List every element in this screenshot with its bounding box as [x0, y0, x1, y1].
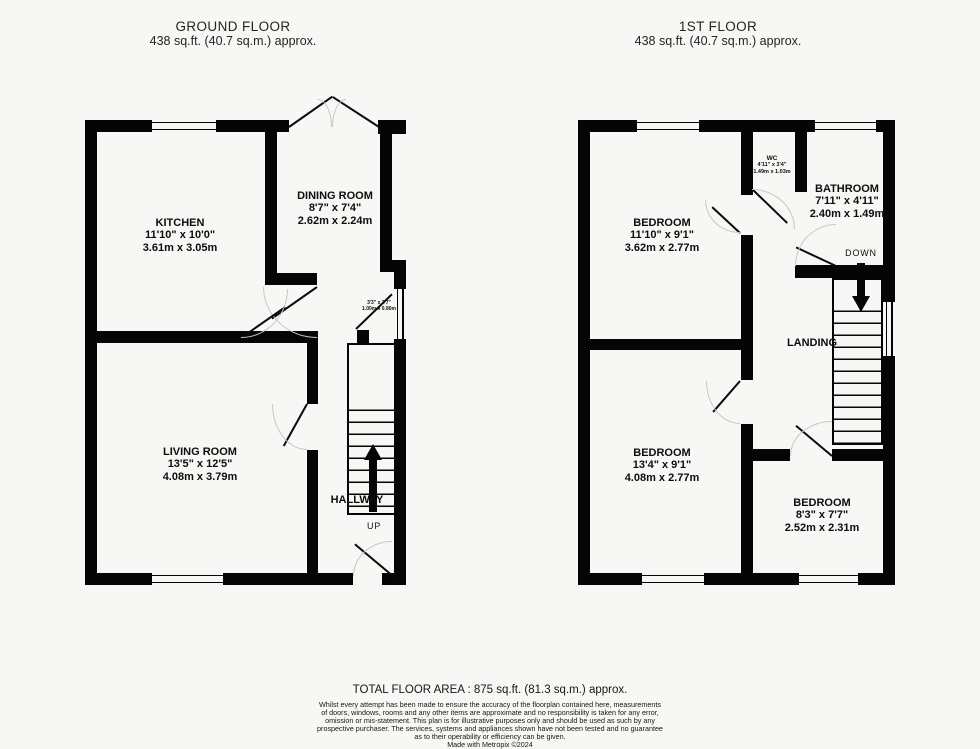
window: [797, 573, 860, 585]
room-dims-imperial: 4'11" x 3'4": [753, 162, 790, 168]
down-arrow-head: [852, 296, 870, 312]
room-name: WC: [753, 155, 790, 162]
wall: [741, 449, 790, 461]
room-name: BATHROOM: [810, 183, 885, 195]
room-label-bedroom1: BEDROOM 11'10" x 9'1" 3.62m x 2.77m: [625, 217, 700, 254]
door-swing-arc: [752, 189, 795, 229]
room-label-bedroom3: BEDROOM 8'3" x 7'7" 2.52m x 2.31m: [785, 497, 860, 534]
wall: [741, 235, 753, 339]
wall: [832, 449, 883, 461]
room-name: BEDROOM: [625, 447, 700, 459]
room-label-bedroom2: BEDROOM 13'4" x 9'1" 4.08m x 2.77m: [625, 447, 700, 484]
room-label-wc: WC 4'11" x 3'4" 1.49m x 1.03m: [753, 155, 790, 175]
stairs-down-label: DOWN: [845, 248, 877, 258]
room-dims-metric: 2.40m x 1.49m: [810, 208, 885, 220]
window: [640, 573, 706, 585]
window: [883, 300, 895, 358]
door-swing-arc: [795, 224, 836, 266]
wall: [795, 132, 807, 192]
metropix-credit: Made with Metropix ©2024: [317, 741, 663, 749]
total-floor-area: TOTAL FLOOR AREA : 875 sq.ft. (81.3 sq.m…: [317, 684, 663, 697]
door-swing-arc: [706, 381, 740, 424]
wall: [578, 339, 741, 350]
room-label-bathroom: BATHROOM 7'11" x 4'11" 2.40m x 1.49m: [810, 183, 885, 220]
stair-treads: [834, 300, 881, 443]
room-name: LANDING: [787, 337, 837, 349]
room-dims-imperial: 13'4" x 9'1": [625, 459, 700, 471]
room-dims-metric: 1.49m x 1.03m: [753, 169, 790, 175]
wall: [741, 132, 753, 195]
room-dims-imperial: 7'11" x 4'11": [810, 195, 885, 207]
room-dims-imperial: 11'10" x 9'1": [625, 229, 700, 241]
room-dims-metric: 2.52m x 2.31m: [785, 522, 860, 534]
door-swing-arc: [705, 200, 740, 233]
wall: [578, 120, 590, 585]
plan-first-floor: BEDROOM 11'10" x 9'1" 3.62m x 2.77m WC 4…: [0, 0, 980, 749]
wall: [741, 339, 753, 380]
room-dims-imperial: 8'3" x 7'7": [785, 509, 860, 521]
window: [635, 120, 701, 132]
room-label-landing: LANDING: [787, 337, 837, 349]
down-arrow: [857, 263, 865, 297]
wall: [795, 265, 895, 278]
room-dims-metric: 3.62m x 2.77m: [625, 242, 700, 254]
room-name: BEDROOM: [625, 217, 700, 229]
wall: [741, 424, 753, 573]
window: [813, 120, 878, 132]
room-name: BEDROOM: [785, 497, 860, 509]
room-dims-metric: 4.08m x 2.77m: [625, 472, 700, 484]
footer: TOTAL FLOOR AREA : 875 sq.ft. (81.3 sq.m…: [317, 684, 663, 748]
